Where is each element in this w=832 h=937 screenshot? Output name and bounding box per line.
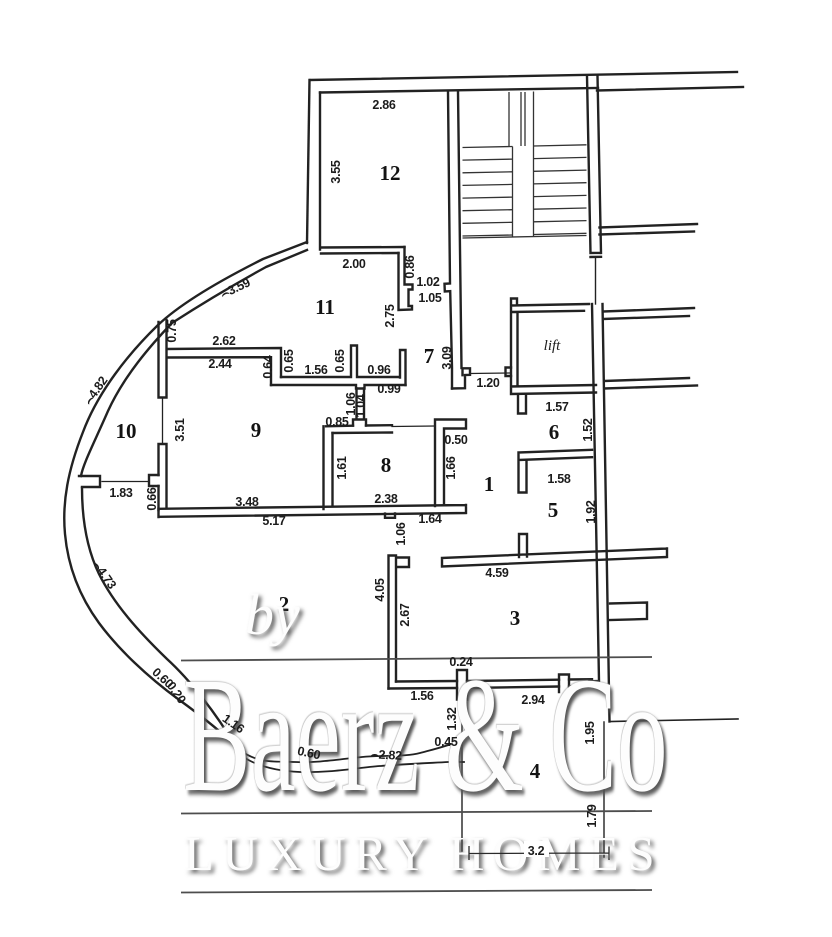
- svg-text:0.24: 0.24: [449, 655, 472, 669]
- svg-text:1.52: 1.52: [581, 418, 595, 441]
- svg-text:2.62: 2.62: [212, 334, 235, 348]
- svg-text:0.65: 0.65: [282, 349, 296, 372]
- svg-text:1.56: 1.56: [304, 363, 327, 377]
- svg-text:4.05: 4.05: [373, 578, 387, 601]
- svg-text:1.64: 1.64: [418, 512, 441, 526]
- svg-text:10: 10: [116, 419, 137, 443]
- svg-text:1.05: 1.05: [418, 291, 441, 305]
- svg-text:1: 1: [484, 472, 495, 496]
- svg-text:5.17: 5.17: [262, 514, 285, 528]
- svg-text:1.61: 1.61: [335, 456, 349, 479]
- svg-text:2.00: 2.00: [342, 257, 365, 271]
- svg-text:2.86: 2.86: [372, 98, 395, 112]
- svg-text:2.94: 2.94: [521, 693, 544, 707]
- svg-text:9: 9: [251, 418, 262, 442]
- svg-text:2.38: 2.38: [374, 492, 397, 506]
- svg-text:1.79: 1.79: [585, 804, 599, 827]
- svg-text:2.75: 2.75: [383, 304, 397, 327]
- svg-text:0.99: 0.99: [377, 382, 400, 396]
- svg-text:0.85: 0.85: [325, 415, 348, 429]
- svg-text:11: 11: [315, 295, 335, 319]
- svg-text:1.56: 1.56: [410, 689, 433, 703]
- svg-text:1.83: 1.83: [109, 486, 132, 500]
- svg-text:3: 3: [510, 606, 521, 630]
- svg-text:5: 5: [548, 498, 559, 522]
- svg-text:0.96: 0.96: [367, 363, 390, 377]
- svg-text:3.09: 3.09: [440, 346, 454, 369]
- svg-text:6: 6: [549, 420, 560, 444]
- svg-text:1.95: 1.95: [583, 721, 597, 744]
- svg-text:lift: lift: [544, 338, 562, 354]
- svg-text:3.2: 3.2: [528, 844, 545, 858]
- svg-text:⌢4.82: ⌢4.82: [81, 374, 110, 408]
- svg-text:⌢2.82: ⌢2.82: [370, 747, 402, 763]
- svg-text:1.02: 1.02: [416, 275, 439, 289]
- svg-text:0.50: 0.50: [444, 433, 467, 447]
- svg-text:4: 4: [530, 759, 541, 783]
- svg-text:0.45: 0.45: [434, 735, 457, 749]
- svg-text:3.55: 3.55: [329, 160, 343, 183]
- svg-text:1.92: 1.92: [584, 500, 598, 523]
- svg-text:8: 8: [381, 453, 392, 477]
- svg-text:1.20: 1.20: [476, 376, 499, 390]
- svg-text:3.48: 3.48: [235, 495, 258, 509]
- svg-text:3.51: 3.51: [173, 418, 187, 441]
- svg-text:1.66: 1.66: [444, 456, 458, 479]
- svg-text:0.86: 0.86: [403, 255, 417, 278]
- svg-text:1.04: 1.04: [354, 394, 368, 417]
- svg-text:7: 7: [424, 344, 435, 368]
- svg-text:0.66: 0.66: [145, 487, 159, 510]
- svg-text:12: 12: [380, 161, 401, 185]
- svg-text:1.58: 1.58: [547, 472, 570, 486]
- svg-text:0.64: 0.64: [261, 355, 275, 378]
- svg-text:1.57: 1.57: [545, 400, 568, 414]
- svg-text:0.75: 0.75: [165, 319, 179, 342]
- svg-text:2.44: 2.44: [208, 357, 231, 371]
- svg-text:1.32: 1.32: [445, 707, 459, 730]
- svg-text:by: by: [245, 582, 300, 647]
- svg-text:2.67: 2.67: [398, 603, 412, 626]
- svg-text:1.06: 1.06: [394, 522, 408, 545]
- svg-text:⌢4.73: ⌢4.73: [90, 558, 119, 592]
- svg-text:0.65: 0.65: [333, 349, 347, 372]
- svg-text:4.59: 4.59: [485, 566, 508, 580]
